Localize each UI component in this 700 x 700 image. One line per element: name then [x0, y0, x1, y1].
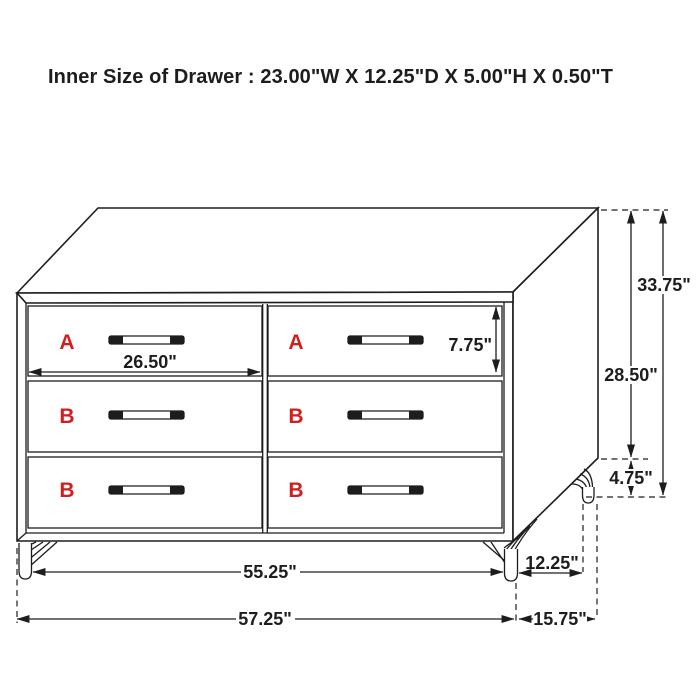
drawer-label: A [288, 331, 303, 354]
dim-label-overall-depth: 15.75" [533, 609, 587, 629]
dim-label-overall-width: 57.25" [238, 609, 292, 629]
dim-overall-height: 33.75" [636, 211, 691, 495]
front-face [17, 292, 513, 541]
diagram-canvas: Inner Size of Drawer : 23.00"W X 12.25"D… [0, 0, 700, 700]
drawer-label: B [59, 405, 74, 428]
top-surface [17, 208, 598, 293]
dim-label-leg-height: 4.75" [609, 468, 653, 488]
dresser-body [17, 208, 598, 541]
dim-label-drawer-face-height: 7.75" [448, 335, 492, 355]
dim-overall-depth: 15.75" [519, 609, 595, 629]
drawer-label: B [288, 405, 303, 428]
dresser-dimension-diagram: A A B [0, 0, 700, 700]
dim-label-body-height: 28.50" [604, 365, 658, 385]
dim-leg-height: 4.75" [608, 461, 654, 495]
dim-label-base-depth: 12.25" [525, 553, 579, 573]
dim-body-height: 28.50" [604, 211, 658, 457]
dim-overall-width: 57.25" [17, 609, 514, 629]
dim-label-base-width: 55.25" [243, 562, 297, 582]
dim-label-overall-height: 33.75" [637, 275, 691, 295]
top-edge-band [17, 292, 513, 303]
drawer-label: B [59, 479, 74, 502]
dim-base-depth: 12.25" [519, 553, 582, 573]
dim-base-width: 55.25" [33, 562, 503, 582]
front-left-leg [19, 542, 57, 579]
drawer-label: A [59, 331, 74, 354]
dim-label-drawer-face-width: 26.50" [123, 352, 177, 372]
drawer-label: B [288, 479, 303, 502]
